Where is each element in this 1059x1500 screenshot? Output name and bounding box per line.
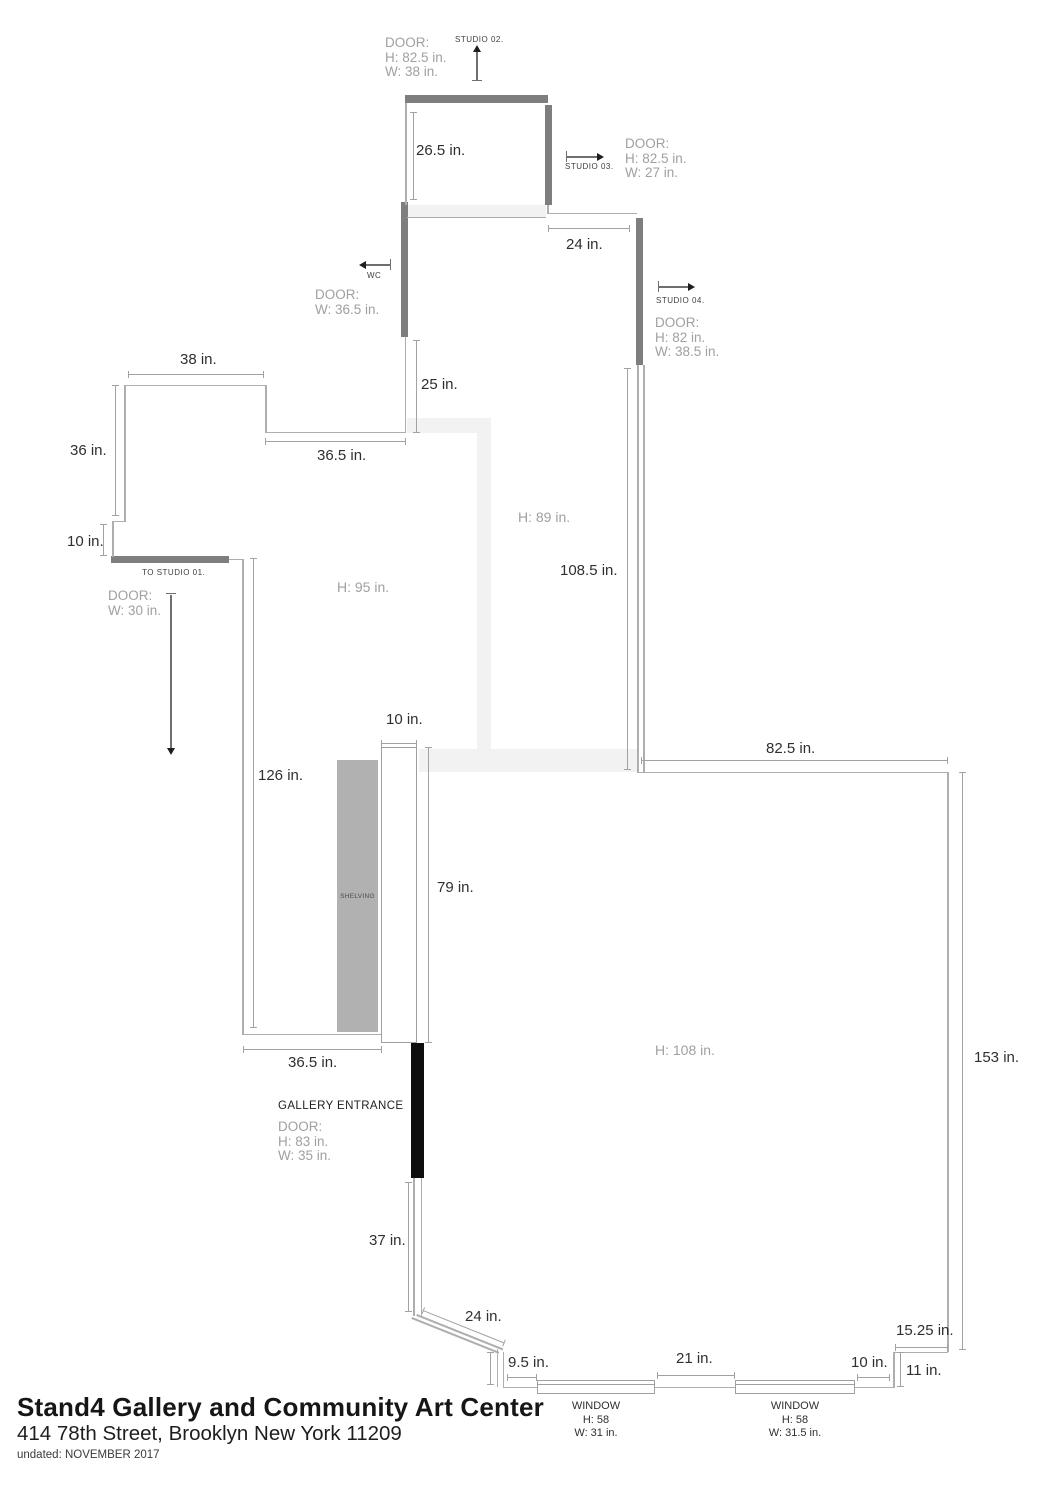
- measure-line-wc-wall: [416, 340, 417, 433]
- window-label-left: WINDOW H: 58 W: 31 in.: [537, 1400, 655, 1441]
- wall-mid-vertical: [405, 337, 407, 433]
- gallery-entrance-door: [411, 1043, 424, 1178]
- wall-studio02-top: [405, 95, 548, 103]
- measure-top-room: 26.5 in.: [416, 142, 465, 159]
- page-address: 414 78th Street, Brooklyn New York 11209: [17, 1422, 402, 1446]
- wall-corridor-east-outer: [643, 365, 645, 773]
- wall-wc-door: [401, 202, 408, 337]
- measure-line-win-gap-left: [507, 1377, 537, 1378]
- measure-entry-wall: 37 in.: [369, 1232, 406, 1249]
- measure-line-step-width: [895, 1347, 948, 1348]
- window-width: W: 31.5 in.: [735, 1427, 855, 1441]
- floor-strip-corridor-bottom: [419, 749, 637, 772]
- measure-pier-length: 79 in.: [437, 879, 474, 896]
- arrow-studio04-line: [658, 286, 688, 288]
- measure-line-step-height: [900, 1352, 901, 1387]
- window-label-right: WINDOW H: 58 W: 31.5 in.: [735, 1400, 855, 1441]
- arrow-down-icon: [167, 748, 175, 755]
- room-height-89: H: 89 in.: [518, 509, 570, 525]
- wall-studio04-door: [636, 218, 643, 365]
- wall-west-long: [242, 559, 244, 1035]
- window-right: [735, 1380, 855, 1394]
- door-width: W: 35 in.: [278, 1149, 331, 1164]
- wall-corridor-east-inner: [637, 365, 639, 773]
- wall-hall-top: [548, 213, 637, 215]
- measure-line-hall-top: [548, 228, 630, 229]
- door-spec-studio01: DOOR: W: 30 in.: [108, 589, 161, 618]
- label-studio03: STUDIO 03.: [565, 162, 614, 171]
- window-title: WINDOW: [537, 1400, 655, 1414]
- measure-left-top: 38 in.: [180, 351, 217, 368]
- wall-studio02-left: [405, 103, 407, 205]
- door-height: H: 82.5 in.: [625, 152, 687, 167]
- wall-entry-inner: [413, 1178, 415, 1316]
- measure-line-mid-wall: [265, 441, 406, 442]
- shelving-label: SHELVING: [340, 893, 375, 900]
- door-label: DOOR:: [315, 288, 379, 303]
- measure-line-corridor: [627, 368, 628, 770]
- door-label: DOOR:: [655, 316, 719, 331]
- measure-line-top-room: [413, 112, 414, 200]
- measure-west-wall: 126 in.: [258, 767, 303, 784]
- measure-line-left-side: [115, 385, 116, 516]
- arrow-studio02-line: [476, 52, 478, 80]
- measure-room-side: 153 in.: [974, 1049, 1019, 1066]
- measure-pier-width: 10 in.: [386, 711, 423, 728]
- shelving-unit: SHELVING: [337, 760, 378, 1032]
- floor-strip-corridor: [477, 418, 491, 749]
- label-wc: WC: [367, 271, 381, 280]
- arrow-wc-tick: [390, 259, 391, 270]
- wall-left-top: [124, 385, 266, 387]
- page-title: Stand4 Gallery and Community Art Center: [17, 1392, 544, 1423]
- wall-corner-outer: [503, 1352, 505, 1387]
- measure-line-pier-width: [381, 743, 417, 744]
- floor-plan: SHELVING 26.5 in. 24 in. 25 in. 36.5 in.…: [0, 0, 1059, 1500]
- door-spec-wc: DOOR: W: 36.5 in.: [315, 288, 379, 317]
- wall-left-upper: [124, 385, 126, 522]
- wall-strip-edge: [407, 217, 546, 218]
- measure-hall-top: 24 in.: [566, 236, 603, 253]
- measure-line-pier-length: [428, 747, 429, 1043]
- arrow-studio01-line: [170, 595, 172, 748]
- arrow-studio02-tick: [472, 80, 482, 81]
- door-width: W: 27 in.: [625, 166, 687, 181]
- measure-wc-wall: 25 in.: [421, 376, 458, 393]
- door-spec-studio03: DOOR: H: 82.5 in. W: 27 in.: [625, 137, 687, 181]
- door-width: W: 30 in.: [108, 604, 161, 619]
- room-height-95: H: 95 in.: [337, 579, 389, 595]
- door-label: DOOR:: [625, 137, 687, 152]
- window-height: H: 58: [735, 1414, 855, 1428]
- measure-line-corner: [490, 1352, 491, 1385]
- wall-mid-right: [265, 385, 267, 432]
- door-height: H: 83 in.: [278, 1135, 331, 1150]
- window-left: [537, 1380, 655, 1394]
- window-title: WINDOW: [735, 1400, 855, 1414]
- measure-line-room-side: [962, 772, 963, 1350]
- arrow-right-icon: [597, 153, 604, 161]
- measure-line-room-top: [641, 760, 948, 761]
- label-to-studio01: TO STUDIO 01.: [142, 568, 205, 577]
- arrow-studio03-tick: [566, 151, 567, 162]
- measure-step-width: 15.25 in.: [896, 1322, 954, 1339]
- wall-step-side: [893, 1352, 895, 1388]
- measure-line-win-gap-right: [857, 1377, 890, 1378]
- wall-studio01-door: [111, 556, 229, 563]
- measure-line-shelf-width: [243, 1049, 382, 1050]
- label-studio04: STUDIO 04.: [656, 296, 705, 305]
- measure-win-gap-right: 10 in.: [851, 1354, 888, 1371]
- wall-left-lower: [112, 521, 114, 557]
- door-width: W: 36.5 in.: [315, 303, 379, 318]
- door-width: W: 38 in.: [385, 65, 447, 80]
- measure-mid-wall: 36.5 in.: [317, 447, 366, 464]
- window-width: W: 31 in.: [537, 1427, 655, 1441]
- label-studio02: STUDIO 02.: [455, 35, 504, 44]
- measure-left-step: 10 in.: [67, 533, 104, 550]
- wall-left-jog: [112, 521, 125, 523]
- arrow-studio01-tick: [166, 593, 176, 594]
- arrow-studio04-tick: [658, 281, 659, 292]
- page-date: undated: NOVEMBER 2017: [17, 1449, 160, 1461]
- measure-line-win-gap-mid: [657, 1375, 735, 1376]
- label-gallery-entrance: GALLERY ENTRANCE: [278, 1100, 404, 1112]
- arrow-studio03-line: [566, 156, 597, 158]
- measure-line-entry-wall: [408, 1182, 409, 1312]
- wall-corner-inner: [497, 1349, 499, 1387]
- door-label: DOOR:: [278, 1120, 331, 1135]
- door-spec-studio04: DOOR: H: 82 in. W: 38.5 in.: [655, 316, 719, 360]
- wall-entry-outer: [421, 1178, 423, 1317]
- measure-line-left-top: [128, 374, 264, 375]
- wall-shelf-bottom: [242, 1034, 382, 1036]
- measure-corridor: 108.5 in.: [560, 562, 618, 579]
- measure-line-west-wall: [253, 558, 254, 1028]
- room-height-108: H: 108 in.: [655, 1042, 715, 1058]
- door-label: DOOR:: [385, 36, 447, 51]
- door-label: DOOR:: [108, 589, 161, 604]
- arrow-wc-line: [366, 264, 390, 266]
- measure-diag-wall: 24 in.: [465, 1308, 502, 1325]
- wall-after-studio01-door: [229, 559, 243, 561]
- arrow-up-icon: [473, 45, 481, 52]
- measure-room-top: 82.5 in.: [766, 740, 815, 757]
- measure-win-gap-mid: 21 in.: [676, 1350, 713, 1367]
- door-spec-gallery: DOOR: H: 83 in. W: 35 in.: [278, 1120, 331, 1164]
- door-width: W: 38.5 in.: [655, 345, 719, 360]
- measure-step-height: 11 in.: [906, 1362, 942, 1379]
- arrow-left-icon: [359, 261, 366, 269]
- wall-room-top: [638, 772, 948, 774]
- door-height: H: 82 in.: [655, 331, 719, 346]
- arrow-right-icon: [688, 283, 695, 291]
- wall-room-right: [947, 772, 949, 1352]
- measure-left-side: 36 in.: [70, 442, 107, 459]
- wall-mid-horizontal: [265, 432, 406, 434]
- door-spec-studio02: DOOR: H: 82.5 in. W: 38 in.: [385, 36, 447, 80]
- wall-studio03-door: [545, 105, 552, 205]
- measure-win-gap-left: 9.5 in.: [508, 1354, 549, 1371]
- measure-shelf-width: 36.5 in.: [288, 1054, 337, 1071]
- window-height: H: 58: [537, 1414, 655, 1428]
- door-height: H: 82.5 in.: [385, 51, 447, 66]
- wall-pier-10in: [381, 747, 417, 1043]
